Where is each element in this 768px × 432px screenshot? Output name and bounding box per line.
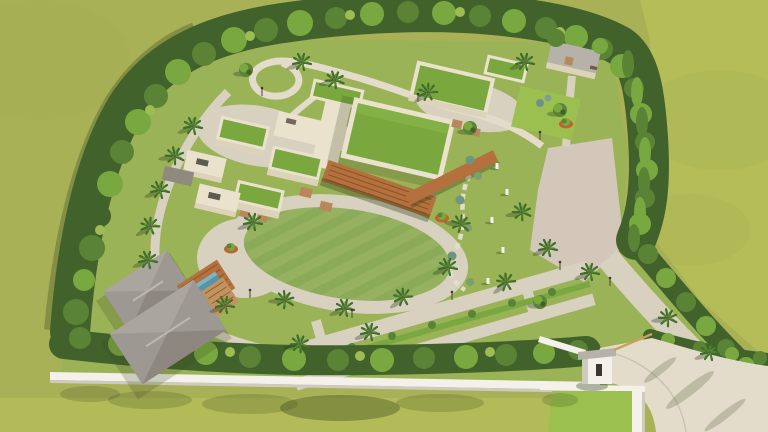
tree-canopy bbox=[547, 29, 565, 47]
aerial-render-image bbox=[0, 0, 768, 432]
corner-lawn bbox=[542, 391, 632, 432]
compound-scene bbox=[0, 0, 768, 432]
gatehouse-window bbox=[596, 364, 602, 376]
tree-canopy bbox=[592, 38, 608, 54]
